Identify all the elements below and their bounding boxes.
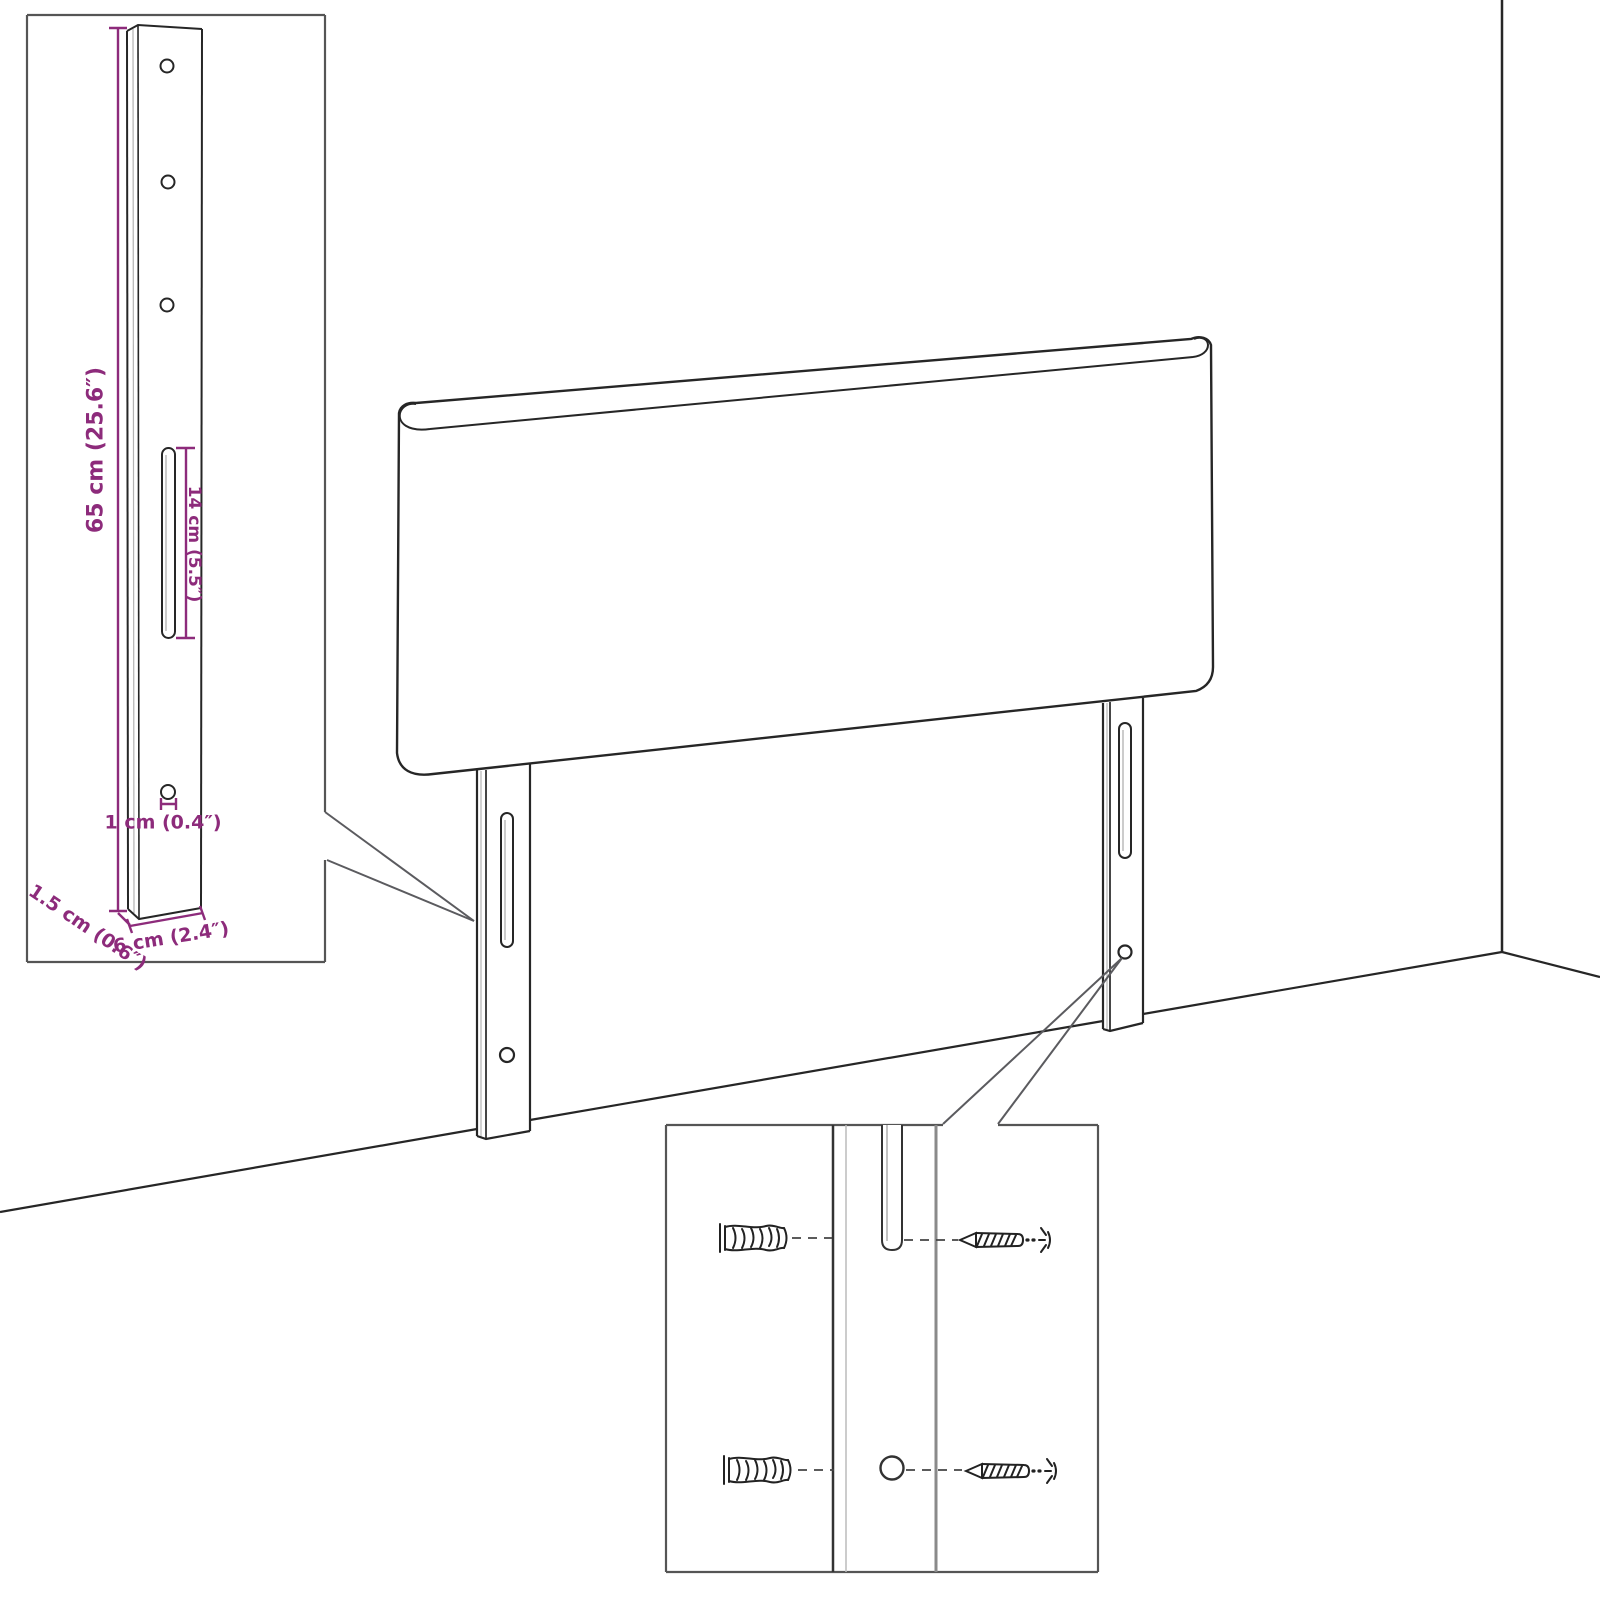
dim-height-label: 65 cm (25.6″) — [84, 367, 109, 533]
headboard-right-leg — [1103, 698, 1143, 1031]
background — [0, 0, 1600, 1600]
headboard-left-leg — [477, 764, 530, 1139]
bracket-side-view — [127, 25, 202, 919]
diagram-canvas: 65 cm (25.6″) 14 cm (5.5″) 1 cm (0.4″) 1… — [0, 0, 1600, 1600]
assembly-diagram: 65 cm (25.6″) 14 cm (5.5″) 1 cm (0.4″) 1… — [0, 0, 1600, 1600]
closeup-screw-hole — [881, 1457, 904, 1480]
dim-hole-label: 1 cm (0.4″) — [104, 812, 221, 834]
closeup-mounting-slot — [882, 1125, 902, 1250]
dim-slot-label: 14 cm (5.5″) — [184, 486, 204, 603]
